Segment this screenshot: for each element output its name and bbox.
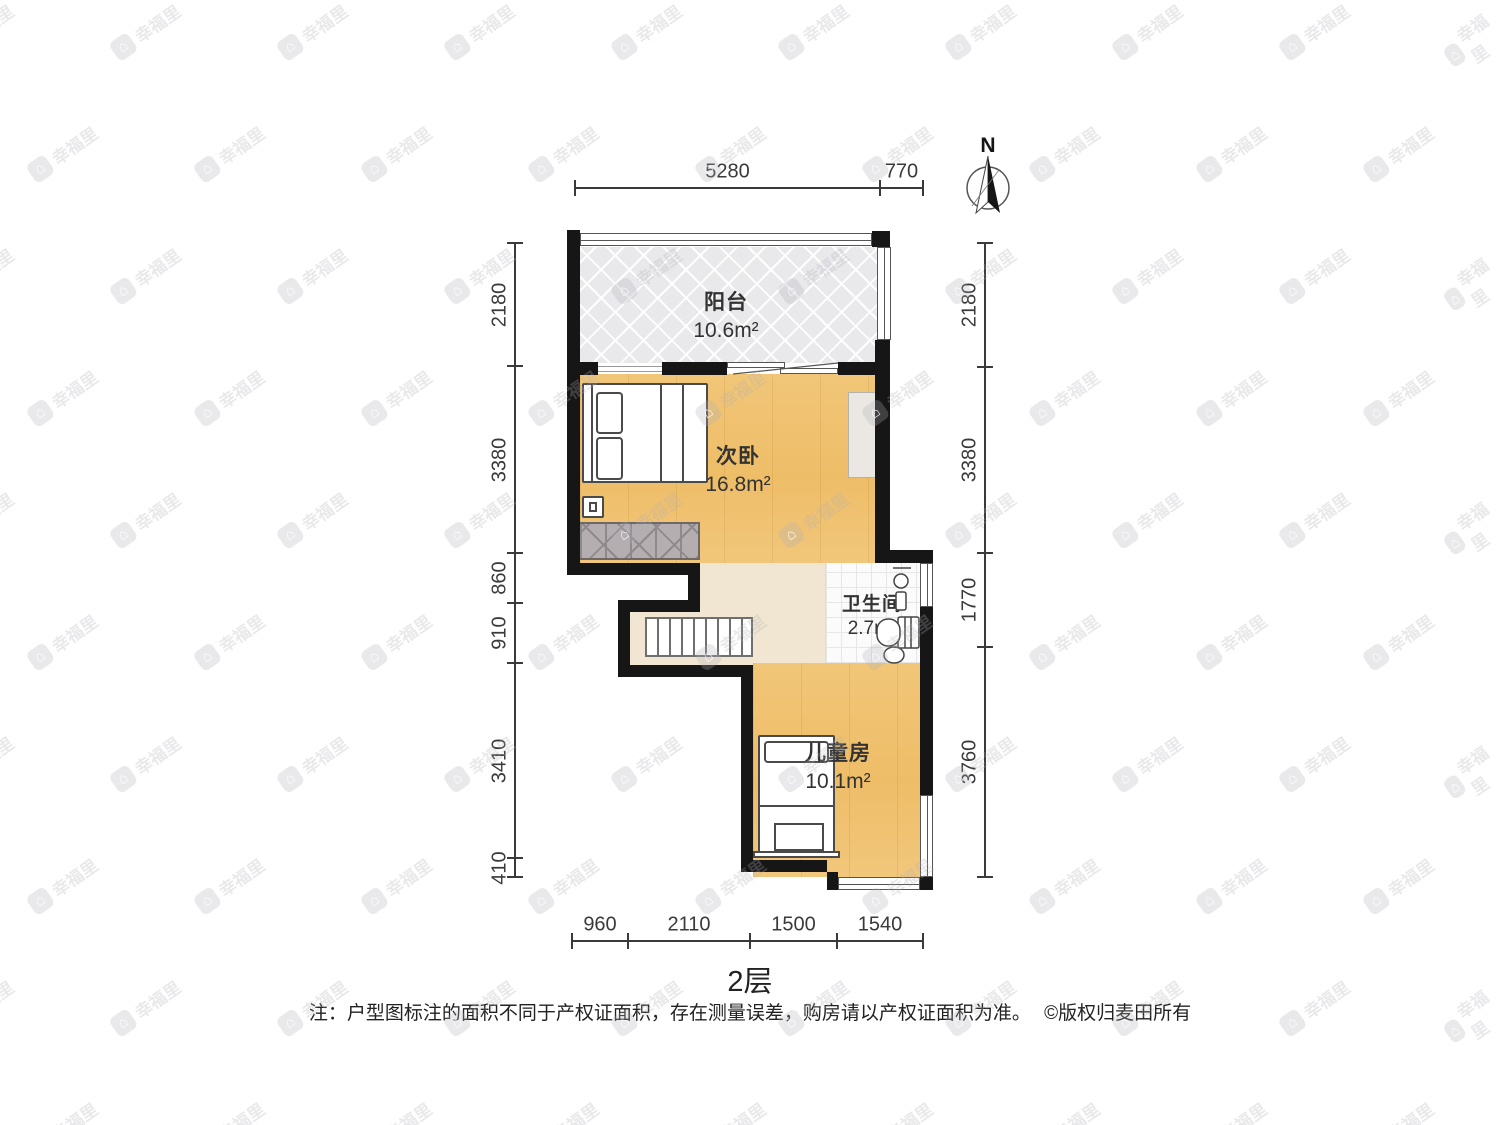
watermark-text: 幸福里 [129, 974, 185, 1024]
pillow [596, 392, 623, 434]
watermark: ⌂幸福里 [24, 1096, 102, 1125]
watermark: ⌂幸福里 [1193, 1096, 1271, 1125]
watermark-text: 幸福里 [1451, 738, 1500, 800]
window-mullion [927, 564, 928, 606]
watermark-house-icon: ⌂ [1361, 885, 1392, 916]
watermark-text: 幸福里 [1215, 1096, 1271, 1125]
watermark-text: 幸福里 [1382, 120, 1438, 170]
sliding-door-panel [727, 362, 785, 368]
watermark-house-icon: ⌂ [25, 397, 56, 428]
watermark: ⌂幸福里 [0, 730, 18, 795]
watermark: ⌂幸福里 [1360, 852, 1438, 917]
watermark-house-icon: ⌂ [192, 885, 223, 916]
dimension-label: 2110 [667, 914, 710, 937]
room-label-kidsroom: 儿童房 10.1m² [805, 737, 871, 794]
watermark: ⌂幸福里 [1434, 6, 1500, 80]
watermark: ⌂幸福里 [24, 364, 102, 429]
window-mullion [581, 240, 871, 241]
watermark-house-icon: ⌂ [1110, 31, 1141, 62]
door-opening-sill [598, 366, 662, 372]
watermark-house-icon: ⌂ [1194, 641, 1225, 672]
wall-segment [920, 877, 933, 890]
watermark-house-icon: ⌂ [943, 31, 974, 62]
watermark-house-icon: ⌂ [1194, 153, 1225, 184]
watermark: ⌂幸福里 [1360, 364, 1438, 429]
watermark-text: 幸福里 [380, 608, 436, 658]
watermark-text: 幸福里 [547, 1096, 603, 1125]
watermark-text: 幸福里 [1048, 364, 1104, 414]
room-area: 16.8m² [705, 473, 770, 497]
watermark: ⌂幸福里 [0, 242, 18, 307]
watermark: ⌂幸福里 [1193, 364, 1271, 429]
watermark-house-icon: ⌂ [1110, 275, 1141, 306]
watermark-text: 幸福里 [213, 608, 269, 658]
watermark-house-icon: ⌂ [359, 397, 390, 428]
watermark-text: 幸福里 [1298, 242, 1354, 292]
watermark-text: 幸福里 [1298, 730, 1354, 780]
watermark-house-icon: ⌂ [1277, 519, 1308, 550]
watermark: ⌂幸福里 [24, 852, 102, 917]
copyright-text: ©版权归麦田所有 [1044, 1003, 1191, 1024]
watermark-text: 幸福里 [1451, 6, 1500, 68]
north-label: N [980, 134, 995, 158]
stairs [645, 617, 753, 657]
watermark: ⌂幸福里 [1360, 1096, 1438, 1125]
wall-segment [920, 663, 933, 795]
watermark: ⌂幸福里 [1193, 608, 1271, 673]
watermark-text: 幸福里 [1382, 608, 1438, 658]
watermark: ⌂幸福里 [191, 120, 269, 185]
north-compass-icon [967, 156, 1009, 213]
dimension-label: 410 [489, 851, 512, 884]
dimension-tick [507, 242, 523, 244]
dimension-tick [977, 646, 993, 648]
dimension-label: 3410 [489, 738, 512, 783]
wall-segment [920, 607, 933, 663]
dimension-label: 2180 [489, 282, 512, 327]
watermark-text: 幸福里 [1215, 364, 1271, 414]
watermark-house-icon: ⌂ [442, 519, 473, 550]
watermark: ⌂幸福里 [191, 852, 269, 917]
window [838, 877, 920, 890]
watermark-text: 幸福里 [296, 242, 352, 292]
watermark-text: 幸福里 [213, 1096, 269, 1125]
watermark-text: 幸福里 [380, 364, 436, 414]
watermark: ⌂幸福里 [1434, 982, 1500, 1056]
watermark: ⌂幸福里 [107, 242, 185, 307]
floor-title: 2层 [727, 958, 772, 1000]
watermark: ⌂幸福里 [358, 852, 436, 917]
watermark-text: 幸福里 [714, 1096, 770, 1125]
window [920, 795, 933, 877]
watermark-text: 幸福里 [1131, 242, 1187, 292]
dimension-tick [507, 365, 523, 367]
watermark-text: 幸福里 [1451, 982, 1500, 1044]
watermark-text: 幸福里 [1215, 852, 1271, 902]
room-area: 2.7m² [842, 618, 902, 640]
watermark: ⌂幸福里 [0, 0, 18, 63]
watermark-house-icon: ⌂ [275, 31, 306, 62]
room-label-bedroom: 次卧 16.8m² [705, 440, 770, 497]
watermark: ⌂幸福里 [942, 486, 1020, 551]
watermark-text: 幸福里 [1382, 364, 1438, 414]
watermark: ⌂幸福里 [1276, 242, 1354, 307]
wall-segment [618, 665, 753, 677]
watermark-house-icon: ⌂ [1277, 31, 1308, 62]
watermark-text: 幸福里 [0, 974, 18, 1024]
dimension-tick [922, 933, 924, 949]
watermark: ⌂幸福里 [107, 730, 185, 795]
window [920, 563, 933, 607]
watermark-house-icon: ⌂ [1442, 529, 1467, 556]
watermark-house-icon: ⌂ [1442, 285, 1467, 312]
watermark: ⌂幸福里 [1109, 486, 1187, 551]
watermark-house-icon: ⌂ [108, 31, 139, 62]
watermark-house-icon: ⌂ [442, 763, 473, 794]
watermark-house-icon: ⌂ [1194, 885, 1225, 916]
watermark: ⌂幸福里 [608, 0, 686, 63]
wall-segment [618, 600, 700, 612]
watermark-house-icon: ⌂ [693, 885, 724, 916]
watermark: ⌂幸福里 [358, 120, 436, 185]
watermark-house-icon: ⌂ [526, 397, 557, 428]
watermark: ⌂幸福里 [1360, 120, 1438, 185]
dimension-tick [977, 242, 993, 244]
room-name: 卫生间 [842, 589, 902, 616]
watermark: ⌂幸福里 [274, 0, 352, 63]
watermark-house-icon: ⌂ [1277, 763, 1308, 794]
watermark-text: 幸福里 [296, 0, 352, 48]
watermark-house-icon: ⌂ [275, 519, 306, 550]
watermark-text: 幸福里 [463, 0, 519, 48]
watermark: ⌂幸福里 [107, 0, 185, 63]
watermark: ⌂幸福里 [1434, 250, 1500, 324]
dimension-tick [571, 933, 573, 949]
watermark: ⌂幸福里 [24, 120, 102, 185]
watermark: ⌂幸福里 [1026, 1096, 1104, 1125]
watermark-house-icon: ⌂ [275, 275, 306, 306]
watermark-text: 幸福里 [547, 608, 603, 658]
watermark-house-icon: ⌂ [1361, 153, 1392, 184]
watermark-text: 幸福里 [380, 1096, 436, 1125]
watermark-text: 幸福里 [0, 486, 18, 536]
dimension-label: 1770 [959, 578, 982, 623]
disclaimer-note: 注：户型图标注的面积不同于产权证面积，存在测量误差，购房请以产权证面积为准。 ©… [305, 998, 1195, 1025]
watermark-house-icon: ⌂ [108, 275, 139, 306]
watermark: ⌂幸福里 [107, 486, 185, 551]
watermark: ⌂幸福里 [358, 1096, 436, 1125]
room-name: 次卧 [705, 440, 770, 470]
dimension-label: 5280 [705, 161, 750, 184]
watermark-text: 幸福里 [296, 730, 352, 780]
room-name: 儿童房 [805, 737, 871, 767]
watermark-text: 幸福里 [1298, 974, 1354, 1024]
watermark-text: 幸福里 [630, 730, 686, 780]
window [877, 247, 891, 340]
bed-blanket-line [660, 385, 662, 481]
watermark-text: 幸福里 [296, 486, 352, 536]
watermark: ⌂幸福里 [1026, 120, 1104, 185]
dimension-tick [574, 180, 576, 196]
watermark-text: 幸福里 [0, 0, 18, 48]
watermark: ⌂幸福里 [274, 486, 352, 551]
dimension-label: 910 [489, 616, 512, 649]
window-mullion [884, 248, 885, 339]
watermark-text: 幸福里 [46, 608, 102, 658]
watermark-house-icon: ⌂ [1442, 41, 1467, 68]
watermark-text: 幸福里 [380, 120, 436, 170]
dimension-tick [507, 552, 523, 554]
watermark-house-icon: ⌂ [108, 1007, 139, 1038]
dimension-label: 1540 [858, 914, 903, 937]
watermark-house-icon: ⌂ [1442, 773, 1467, 800]
watermark: ⌂幸福里 [775, 0, 853, 63]
wall-segment [567, 563, 700, 575]
nightstand [582, 496, 604, 518]
watermark: ⌂幸福里 [525, 608, 603, 673]
watermark: ⌂幸福里 [1434, 494, 1500, 568]
watermark-text: 幸福里 [1215, 120, 1271, 170]
single-bed-base [753, 851, 840, 858]
dimension-tick [977, 552, 993, 554]
window [580, 233, 872, 246]
watermark-house-icon: ⌂ [526, 153, 557, 184]
room-label-balcony: 阳台 10.6m² [693, 286, 758, 343]
watermark: ⌂幸福里 [525, 852, 603, 917]
watermark: ⌂幸福里 [1026, 364, 1104, 429]
watermark-house-icon: ⌂ [359, 641, 390, 672]
watermark-house-icon: ⌂ [108, 519, 139, 550]
watermark-house-icon: ⌂ [1277, 1007, 1308, 1038]
watermark-house-icon: ⌂ [1277, 275, 1308, 306]
watermark: ⌂幸福里 [1276, 730, 1354, 795]
watermark-text: 幸福里 [1451, 250, 1500, 312]
watermark-text: 幸福里 [46, 120, 102, 170]
dimension-tick [879, 180, 881, 196]
cabinet [848, 392, 878, 478]
watermark-text: 幸福里 [46, 364, 102, 414]
watermark-text: 幸福里 [129, 486, 185, 536]
wall-segment [872, 231, 890, 247]
watermark-house-icon: ⌂ [442, 31, 473, 62]
watermark: ⌂幸福里 [942, 0, 1020, 63]
dimension-label: 1500 [771, 914, 816, 937]
room-label-bathroom: 卫生间 2.7m² [842, 589, 902, 640]
watermark: ⌂幸福里 [1434, 738, 1500, 812]
watermark-text: 幸福里 [380, 852, 436, 902]
dimension-tick [977, 366, 993, 368]
watermark-house-icon: ⌂ [943, 519, 974, 550]
watermark-house-icon: ⌂ [275, 1007, 306, 1038]
watermark-text: 幸福里 [1048, 1096, 1104, 1125]
watermark: ⌂幸福里 [1276, 0, 1354, 63]
watermark-text: 幸福里 [1451, 494, 1500, 556]
wall-segment [567, 362, 598, 375]
dimension-label: 3380 [489, 437, 512, 482]
watermark-house-icon: ⌂ [442, 275, 473, 306]
watermark-text: 幸福里 [964, 486, 1020, 536]
watermark-house-icon: ⌂ [1027, 397, 1058, 428]
watermark: ⌂幸福里 [525, 120, 603, 185]
bed-blanket-line [682, 385, 684, 481]
watermark-text: 幸福里 [1382, 852, 1438, 902]
bed-footboard-box [774, 823, 824, 851]
watermark-text: 幸福里 [1131, 730, 1187, 780]
watermark-house-icon: ⌂ [1194, 397, 1225, 428]
wall-segment [875, 374, 890, 552]
watermark-house-icon: ⌂ [359, 153, 390, 184]
watermark-text: 幸福里 [1131, 0, 1187, 48]
watermark-text: 幸福里 [1382, 1096, 1438, 1125]
dimension-tick [922, 180, 924, 196]
watermark: ⌂幸福里 [441, 0, 519, 63]
watermark-house-icon: ⌂ [1442, 1017, 1467, 1044]
room-area: 10.1m² [805, 770, 871, 794]
watermark: ⌂幸福里 [859, 1096, 937, 1125]
watermark: ⌂幸福里 [608, 730, 686, 795]
floor-plan: ⌂幸福里⌂幸福里⌂幸福里⌂幸福里⌂幸福里⌂幸福里⌂幸福里⌂幸福里⌂幸福里⌂幸福里… [0, 0, 1500, 1125]
watermark-text: 幸福里 [1131, 486, 1187, 536]
watermark-house-icon: ⌂ [1361, 397, 1392, 428]
dimension-line [984, 243, 986, 877]
dimension-line [514, 243, 516, 877]
watermark-text: 幸福里 [129, 0, 185, 48]
watermark: ⌂幸福里 [692, 1096, 770, 1125]
watermark-house-icon: ⌂ [192, 397, 223, 428]
wall-segment [741, 677, 753, 872]
dimension-tick [749, 933, 751, 949]
watermark-house-icon: ⌂ [526, 641, 557, 672]
watermark-house-icon: ⌂ [25, 885, 56, 916]
watermark: ⌂幸福里 [191, 1096, 269, 1125]
watermark-house-icon: ⌂ [609, 763, 640, 794]
watermark-house-icon: ⌂ [192, 641, 223, 672]
watermark: ⌂幸福里 [1109, 0, 1187, 63]
watermark-text: 幸福里 [129, 730, 185, 780]
watermark-house-icon: ⌂ [1110, 519, 1141, 550]
watermark: ⌂幸福里 [24, 608, 102, 673]
dimension-label: 960 [583, 914, 616, 937]
watermark-text: 幸福里 [964, 0, 1020, 48]
watermark-house-icon: ⌂ [108, 763, 139, 794]
watermark: ⌂幸福里 [1026, 852, 1104, 917]
room-name: 阳台 [693, 286, 758, 316]
watermark-text: 幸福里 [630, 0, 686, 48]
watermark-text: 幸福里 [1048, 852, 1104, 902]
watermark-text: 幸福里 [213, 364, 269, 414]
watermark: ⌂幸福里 [191, 364, 269, 429]
watermark-house-icon: ⌂ [526, 885, 557, 916]
watermark-house-icon: ⌂ [25, 153, 56, 184]
note-text: 注：户型图标注的面积不同于产权证面积，存在测量误差，购房请以产权证面积为准。 [309, 1003, 1031, 1024]
watermark-house-icon: ⌂ [1361, 641, 1392, 672]
room-area: 10.6m² [693, 319, 758, 343]
dimension-label: 3760 [959, 740, 982, 785]
watermark: ⌂幸福里 [358, 608, 436, 673]
dimension-label: 2180 [959, 283, 982, 328]
watermark-text: 幸福里 [0, 242, 18, 292]
bed-headboard [591, 385, 593, 481]
watermark: ⌂幸福里 [0, 974, 18, 1039]
wall-segment [875, 550, 933, 563]
watermark-text: 幸福里 [1298, 0, 1354, 48]
watermark-text: 幸福里 [463, 486, 519, 536]
watermark: ⌂幸福里 [441, 486, 519, 551]
watermark-house-icon: ⌂ [25, 641, 56, 672]
watermark-house-icon: ⌂ [192, 153, 223, 184]
pillow [596, 437, 623, 480]
watermark: ⌂幸福里 [358, 364, 436, 429]
watermark: ⌂幸福里 [1109, 242, 1187, 307]
watermark: ⌂幸福里 [1360, 608, 1438, 673]
watermark: ⌂幸福里 [1026, 608, 1104, 673]
window-mullion [927, 796, 928, 876]
watermark-text: 幸福里 [129, 242, 185, 292]
watermark-text: 幸福里 [547, 120, 603, 170]
watermark: ⌂幸福里 [1193, 852, 1271, 917]
watermark-text: 幸福里 [46, 1096, 102, 1125]
watermark-text: 幸福里 [213, 120, 269, 170]
watermark-house-icon: ⌂ [1110, 763, 1141, 794]
watermark-text: 幸福里 [1215, 608, 1271, 658]
wall-segment [662, 362, 727, 375]
dimension-label: 3380 [959, 438, 982, 483]
dimension-tick [507, 662, 523, 664]
watermark: ⌂幸福里 [1109, 730, 1187, 795]
watermark-text: 幸福里 [797, 0, 853, 48]
watermark-text: 幸福里 [0, 730, 18, 780]
dimension-line [572, 940, 923, 942]
dimension-tick [627, 933, 629, 949]
watermark-text: 幸福里 [46, 852, 102, 902]
watermark-text: 幸福里 [213, 852, 269, 902]
watermark-house-icon: ⌂ [1027, 641, 1058, 672]
watermark-text: 幸福里 [1298, 486, 1354, 536]
watermark: ⌂幸福里 [1276, 974, 1354, 1039]
dimension-tick [507, 602, 523, 604]
watermark: ⌂幸福里 [274, 242, 352, 307]
watermark-text: 幸福里 [881, 1096, 937, 1125]
sliding-door-panel [780, 368, 838, 374]
watermark: ⌂幸福里 [0, 486, 18, 551]
watermark-house-icon: ⌂ [1027, 153, 1058, 184]
watermark: ⌂幸福里 [107, 974, 185, 1039]
watermark: ⌂幸福里 [191, 608, 269, 673]
watermark-text: 幸福里 [1048, 120, 1104, 170]
watermark: ⌂幸福里 [274, 730, 352, 795]
dimension-tick [836, 933, 838, 949]
watermark-house-icon: ⌂ [1027, 885, 1058, 916]
wall-segment [741, 860, 827, 872]
dimension-tick [977, 876, 993, 878]
window-mullion [839, 884, 919, 885]
watermark-text: 幸福里 [1048, 608, 1104, 658]
watermark-house-icon: ⌂ [275, 763, 306, 794]
wall-segment [567, 230, 580, 575]
watermark: ⌂幸福里 [1193, 120, 1271, 185]
bed-blanket-line [760, 805, 833, 807]
watermark-house-icon: ⌂ [359, 885, 390, 916]
watermark-text: 幸福里 [547, 852, 603, 902]
watermark-house-icon: ⌂ [609, 31, 640, 62]
dimension-label: 770 [885, 161, 918, 184]
wardrobe [578, 522, 700, 560]
watermark: ⌂幸福里 [1276, 486, 1354, 551]
dimension-line [575, 187, 923, 189]
watermark-house-icon: ⌂ [776, 31, 807, 62]
wall-segment [618, 612, 630, 665]
wall-segment [827, 872, 838, 890]
